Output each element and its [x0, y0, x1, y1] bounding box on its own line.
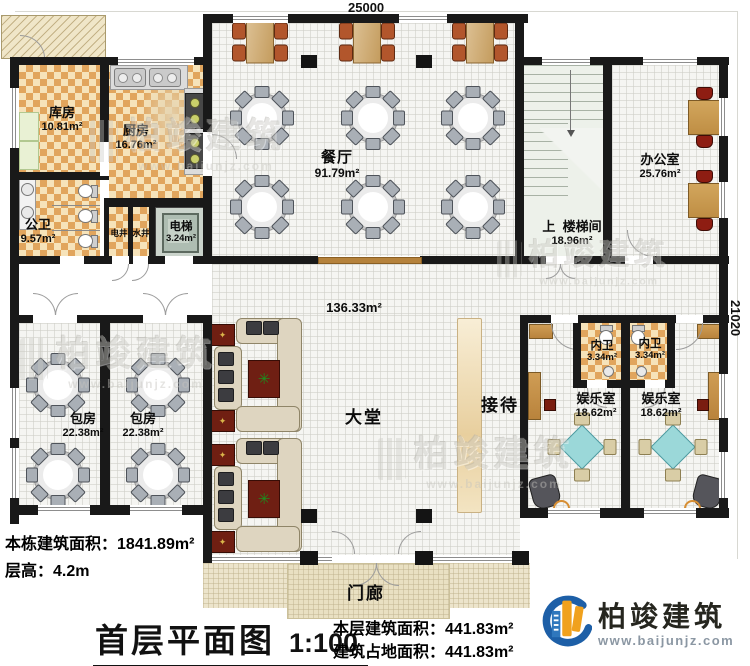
chair-icon	[230, 200, 242, 215]
stove	[185, 93, 204, 129]
room-label-stairwell: 上 楼梯间 18.96m²	[542, 220, 601, 247]
chair-icon	[78, 378, 90, 393]
chair-icon	[255, 175, 270, 187]
wall	[104, 207, 109, 256]
round-table	[229, 174, 295, 240]
chair-icon	[493, 200, 505, 215]
window	[10, 88, 19, 148]
chair-icon	[341, 200, 353, 215]
room-label-private1: 包房 22.38m²	[63, 412, 104, 439]
total-area-label: 本栋建筑面积：	[5, 536, 117, 553]
chair-icon	[574, 469, 590, 482]
cabinet	[529, 324, 553, 339]
entry-canopy	[1, 15, 106, 59]
door-opening	[645, 380, 665, 388]
chair-icon	[382, 90, 401, 109]
footprint-area-label: 建筑占地面积：	[333, 644, 445, 661]
threshold	[318, 257, 422, 264]
wall	[420, 256, 515, 264]
chair-icon	[51, 443, 66, 455]
pillow	[263, 321, 279, 335]
pillow	[263, 441, 279, 455]
chair-icon	[345, 127, 364, 146]
chair-icon	[452, 23, 466, 40]
pillow	[218, 490, 234, 504]
cabinet	[528, 372, 541, 420]
chair-icon	[274, 23, 288, 40]
chair-icon	[382, 216, 401, 235]
round-table	[340, 85, 406, 151]
chair-icon	[345, 216, 364, 235]
office-chair	[696, 135, 713, 148]
chair-icon	[441, 200, 453, 215]
chair-icon	[67, 357, 86, 376]
side-table	[210, 324, 235, 346]
stove	[185, 133, 204, 169]
chair-icon	[366, 138, 381, 150]
wall	[621, 315, 630, 518]
kitchen-sink	[114, 68, 146, 87]
window	[10, 448, 19, 498]
stair-treads-upper	[524, 65, 603, 123]
room-label-wc1: 内卫 3.34m²	[587, 340, 617, 364]
door-opening	[203, 132, 212, 176]
dimension-top: 25000	[348, 0, 384, 15]
reception-counter	[457, 318, 482, 513]
chair-icon	[548, 439, 561, 455]
chair-icon	[482, 90, 501, 109]
mahjong-table	[552, 417, 612, 477]
chair-icon	[130, 357, 149, 376]
side-table	[210, 444, 235, 466]
room-label-public-wc: 公卫 9.57m²	[21, 218, 56, 245]
floor-plan-canvas: ✳ ✳ 柏竣建筑www.baijunjz.com 柏竣建筑www.baijunj…	[0, 0, 750, 666]
round-table	[229, 85, 295, 151]
stall-divider	[52, 205, 100, 206]
chair-icon	[234, 127, 253, 146]
chair-icon	[234, 179, 253, 198]
window	[399, 14, 447, 23]
floor-drain	[636, 366, 647, 377]
glass-wall	[212, 555, 300, 561]
pillar	[415, 551, 433, 565]
chair-icon	[482, 127, 501, 146]
chair-icon	[366, 227, 381, 239]
round-table	[125, 442, 191, 508]
wall	[149, 207, 155, 256]
chair-icon	[339, 45, 353, 62]
chair-icon	[604, 439, 617, 455]
dining-rect-table	[334, 20, 400, 64]
pillow	[218, 472, 234, 486]
door-opening	[587, 380, 607, 388]
chair-icon	[441, 111, 453, 126]
door-arc	[132, 264, 149, 281]
window	[719, 452, 728, 498]
storage-shelf	[19, 112, 39, 141]
page-title: 首层平面图	[95, 614, 275, 662]
floor-drain	[603, 366, 614, 377]
wall	[203, 256, 318, 264]
wall-lamp	[697, 399, 709, 411]
company-logo: 柏竣建筑 www.baijunjz.com	[540, 594, 734, 656]
room-label-wc2: 内卫 3.34m²	[635, 338, 665, 362]
storage-shelf	[19, 141, 39, 170]
chair-icon	[234, 90, 253, 109]
chair-icon	[493, 111, 505, 126]
door-opening	[625, 256, 653, 264]
company-name: 柏竣建筑	[598, 602, 734, 633]
coffee-table: ✳	[248, 360, 280, 398]
chair-icon	[271, 90, 290, 109]
chair-icon	[282, 200, 294, 215]
window	[548, 508, 600, 518]
room-label-private2: 包房 22.38m²	[123, 412, 164, 439]
chair-icon	[345, 179, 364, 198]
window	[10, 388, 19, 438]
pillow	[246, 321, 262, 335]
chair-icon	[167, 484, 186, 503]
toilet	[78, 209, 98, 222]
chair-icon	[695, 439, 708, 455]
chair-icon	[393, 111, 405, 126]
chair-icon	[639, 439, 652, 455]
mahjong-table	[643, 417, 703, 477]
window	[542, 57, 590, 65]
door-opening	[676, 315, 703, 323]
wall	[603, 57, 612, 264]
chair-icon	[494, 23, 508, 40]
chair-icon	[393, 200, 405, 215]
chair-icon	[255, 227, 270, 239]
pillow	[218, 388, 234, 402]
chair-icon	[167, 394, 186, 413]
room-label-reception: 接待	[481, 396, 519, 415]
chair-icon	[466, 86, 481, 98]
wall	[203, 315, 212, 563]
chair-icon	[234, 216, 253, 235]
kitchen-sink	[149, 68, 181, 87]
floor-height-label: 层高：	[5, 563, 53, 580]
chair-icon	[232, 23, 246, 40]
door-opening	[133, 256, 148, 264]
office-chair	[696, 218, 713, 231]
chair-icon	[178, 468, 190, 483]
chair-icon	[466, 175, 481, 187]
chair-icon	[126, 468, 138, 483]
chair-icon	[665, 469, 681, 482]
round-table	[440, 174, 506, 240]
plant-icon: ✳	[258, 492, 271, 507]
chair-icon	[30, 447, 49, 466]
chair-icon	[255, 86, 270, 98]
pillar	[301, 509, 317, 523]
chair-icon	[445, 127, 464, 146]
chair-icon	[130, 484, 149, 503]
room-label-ent2: 娱乐室 18.62m²	[641, 392, 682, 419]
door-opening	[60, 256, 84, 264]
stall-divider	[52, 230, 100, 231]
pillow	[218, 352, 234, 366]
room-label-dining: 餐厅 91.79m²	[315, 150, 360, 180]
dimension-right: 21020	[728, 300, 743, 336]
glass-wall	[318, 555, 332, 561]
chair-icon	[232, 45, 246, 62]
window	[38, 505, 90, 515]
door-opening	[551, 315, 578, 323]
window	[719, 374, 728, 418]
chair-icon	[167, 357, 186, 376]
chair-icon	[271, 127, 290, 146]
chair-icon	[130, 447, 149, 466]
office-desk	[688, 100, 721, 135]
chair-icon	[151, 443, 166, 455]
wall	[667, 315, 675, 388]
window	[233, 14, 288, 23]
wc-sink	[21, 183, 34, 196]
chair-icon	[126, 378, 138, 393]
door-arc	[33, 293, 56, 316]
floor-area-label: 本层建筑面积：	[333, 621, 445, 638]
pillar	[301, 55, 317, 68]
chair-icon	[452, 45, 466, 62]
chair-icon	[274, 45, 288, 62]
wall	[515, 14, 524, 264]
sofa	[236, 526, 300, 552]
chair-icon	[345, 90, 364, 109]
chair-icon	[482, 216, 501, 235]
chair-icon	[30, 357, 49, 376]
round-table	[25, 442, 91, 508]
room-label-elevator: 电梯 3.24m²	[166, 221, 196, 245]
wall	[520, 315, 528, 518]
company-url: www.baijunjz.com	[598, 633, 734, 648]
chair-icon	[51, 353, 66, 365]
coffee-table: ✳	[248, 480, 280, 518]
door-opening	[33, 315, 77, 323]
wall	[10, 172, 108, 180]
floor-height-value: 4.2m	[53, 563, 89, 580]
total-area-value: 1841.89m²	[117, 536, 194, 553]
pillar	[416, 509, 432, 523]
room-label-storage: 库房 10.81m²	[42, 106, 83, 133]
chair-icon	[381, 45, 395, 62]
lobby-area-label: 136.33m²	[326, 301, 382, 316]
window	[719, 182, 728, 218]
chair-icon	[178, 378, 190, 393]
chair-icon	[230, 111, 242, 126]
chair-icon	[26, 468, 38, 483]
chair-icon	[482, 179, 501, 198]
room-label-ent1: 娱乐室 18.62m²	[576, 392, 617, 419]
dining-rect-table	[447, 20, 513, 64]
toilet	[78, 234, 98, 247]
dimension-extension-line	[737, 11, 738, 559]
stair-up-text: 上	[542, 219, 555, 234]
floor-stats: 本层建筑面积：441.83m² 建筑占地面积：441.83m²	[333, 618, 514, 664]
chair-icon	[271, 216, 290, 235]
side-table	[210, 531, 235, 553]
pillar	[512, 551, 529, 565]
chair-icon	[255, 138, 270, 150]
window	[130, 505, 182, 515]
building-stats: 本栋建筑面积：1841.89m² 层高：4.2m	[5, 531, 194, 585]
chair-icon	[466, 227, 481, 239]
chair-icon	[167, 447, 186, 466]
pillow	[218, 370, 234, 384]
pillow	[218, 508, 234, 522]
door-opening	[100, 142, 109, 176]
chair-icon	[445, 216, 464, 235]
dining-rect-table	[227, 20, 293, 64]
chair-icon	[494, 45, 508, 62]
wall-lamp	[544, 399, 556, 411]
door-opening	[546, 256, 574, 264]
wall	[104, 198, 212, 207]
chair-icon	[341, 111, 353, 126]
office-chair	[696, 87, 713, 100]
office-chair	[696, 170, 713, 183]
chair-icon	[151, 353, 166, 365]
door-arc	[165, 293, 188, 316]
chair-icon	[366, 175, 381, 187]
chair-icon	[67, 447, 86, 466]
lobby-corridor-floor	[212, 264, 719, 315]
window	[643, 57, 697, 65]
company-logo-icon	[540, 594, 592, 656]
pillar	[416, 55, 432, 68]
chair-icon	[30, 484, 49, 503]
pillar	[300, 551, 318, 565]
round-table	[440, 85, 506, 151]
door-arc	[112, 264, 129, 281]
room-label-office: 办公室 25.76m²	[640, 153, 681, 180]
round-table	[25, 352, 91, 418]
chair-icon	[445, 90, 464, 109]
drawing-title: 首层平面图 1:100	[93, 614, 368, 666]
chair-icon	[26, 378, 38, 393]
chair-icon	[382, 127, 401, 146]
chair-icon	[78, 468, 90, 483]
office-desk	[688, 183, 721, 218]
side-table	[210, 410, 235, 432]
round-table	[340, 174, 406, 240]
chair-icon	[466, 138, 481, 150]
footprint-area-value: 441.83m²	[445, 644, 514, 661]
chair-icon	[30, 394, 49, 413]
floor-area-value: 441.83m²	[445, 621, 514, 638]
glass-wall	[433, 555, 512, 561]
window	[644, 508, 696, 518]
door-arc	[143, 293, 166, 316]
sofa	[236, 406, 300, 432]
stair-break-line	[540, 128, 603, 190]
room-label-elec-shaft: 电井	[110, 229, 127, 239]
window	[118, 57, 194, 65]
door-opening	[143, 315, 187, 323]
chair-icon	[339, 23, 353, 40]
chair-icon	[381, 23, 395, 40]
round-table	[125, 352, 191, 418]
room-label-water-shaft: 水井	[132, 229, 149, 239]
chair-icon	[366, 86, 381, 98]
chair-icon	[282, 111, 294, 126]
chair-icon	[445, 179, 464, 198]
stair-rail	[570, 70, 571, 132]
chair-icon	[382, 179, 401, 198]
pillow	[246, 441, 262, 455]
toilet	[78, 184, 98, 197]
stair-direction-arrow	[567, 130, 575, 137]
room-label-lobby: 大堂	[345, 408, 383, 427]
chair-icon	[271, 179, 290, 198]
door-opening	[165, 256, 193, 264]
room-label-kitchen: 厨房 16.76m²	[116, 124, 157, 151]
window	[719, 98, 728, 136]
chair-icon	[67, 484, 86, 503]
plant-icon: ✳	[258, 372, 271, 387]
door-arc	[55, 293, 78, 316]
door-opening	[112, 256, 129, 264]
wall	[573, 315, 581, 388]
room-label-porch: 门廊	[347, 584, 385, 603]
